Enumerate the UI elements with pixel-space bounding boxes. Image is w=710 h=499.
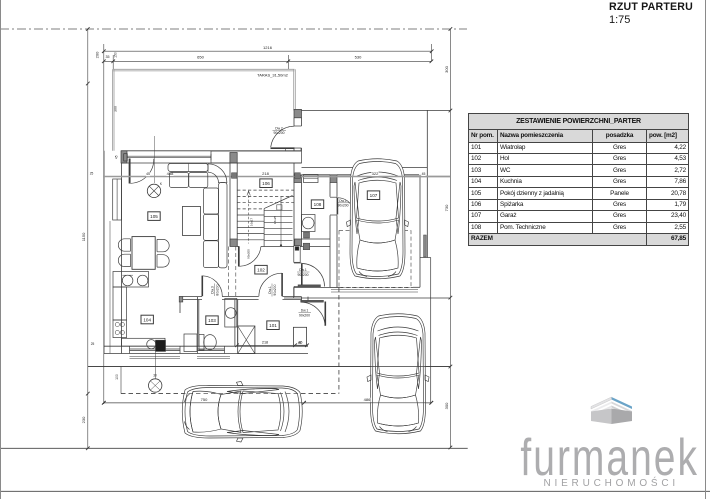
svg-text:35: 35: [106, 55, 110, 59]
svg-text:Dw.1: Dw.1: [339, 199, 347, 203]
svg-text:100: 100: [115, 374, 119, 380]
svg-text:750: 750: [201, 397, 208, 402]
svg-text:45: 45: [299, 341, 303, 345]
svg-text:90x200: 90x200: [273, 131, 284, 135]
svg-text:45: 45: [115, 155, 119, 159]
svg-text:25: 25: [91, 342, 95, 346]
svg-text:Dw.1: Dw.1: [299, 268, 307, 272]
svg-text:25: 25: [90, 172, 94, 176]
svg-text:Dw.1: Dw.1: [268, 286, 272, 294]
svg-text:1216: 1216: [263, 45, 273, 50]
svg-text:TARAS_31,50m2: TARAS_31,50m2: [257, 72, 289, 77]
svg-text:650: 650: [197, 55, 204, 60]
svg-text:30: 30: [153, 374, 157, 378]
svg-text:Dw.1: Dw.1: [301, 309, 309, 313]
svg-text:90x200: 90x200: [337, 204, 348, 208]
svg-text:104: 104: [143, 317, 151, 322]
svg-text:108: 108: [314, 202, 322, 207]
svg-text:103: 103: [208, 318, 216, 323]
svg-text:300: 300: [444, 402, 449, 409]
svg-text:80x200: 80x200: [215, 284, 219, 295]
svg-text:218: 218: [262, 171, 269, 176]
svg-text:230: 230: [81, 416, 86, 423]
svg-text:730: 730: [444, 204, 449, 211]
svg-text:18x25: 18x25: [273, 216, 277, 225]
svg-text:530: 530: [355, 55, 362, 60]
svg-text:16x17: 16x17: [250, 218, 254, 227]
svg-text:Dw.3: Dw.3: [211, 286, 215, 294]
svg-text:K: K: [160, 182, 163, 186]
svg-text:218: 218: [262, 341, 268, 345]
svg-text:90x200: 90x200: [247, 249, 251, 259]
svg-text:45: 45: [422, 172, 426, 176]
svg-text:45: 45: [146, 172, 150, 176]
svg-text:90x200: 90x200: [297, 273, 308, 277]
svg-text:102: 102: [257, 268, 265, 273]
svg-text:101: 101: [269, 323, 277, 328]
svg-text:1150: 1150: [81, 232, 86, 241]
svg-text:150: 150: [114, 52, 118, 58]
svg-text:200: 200: [95, 51, 100, 58]
svg-text:105: 105: [150, 214, 158, 219]
svg-text:300: 300: [444, 65, 449, 72]
svg-text:107: 107: [370, 193, 378, 198]
svg-text:Dw.2: Dw.2: [275, 126, 283, 130]
svg-text:106: 106: [262, 181, 270, 186]
svg-text:322: 322: [372, 171, 379, 176]
svg-text:90x200: 90x200: [273, 284, 277, 295]
svg-text:90x200: 90x200: [299, 314, 310, 318]
svg-text:486: 486: [364, 397, 371, 402]
